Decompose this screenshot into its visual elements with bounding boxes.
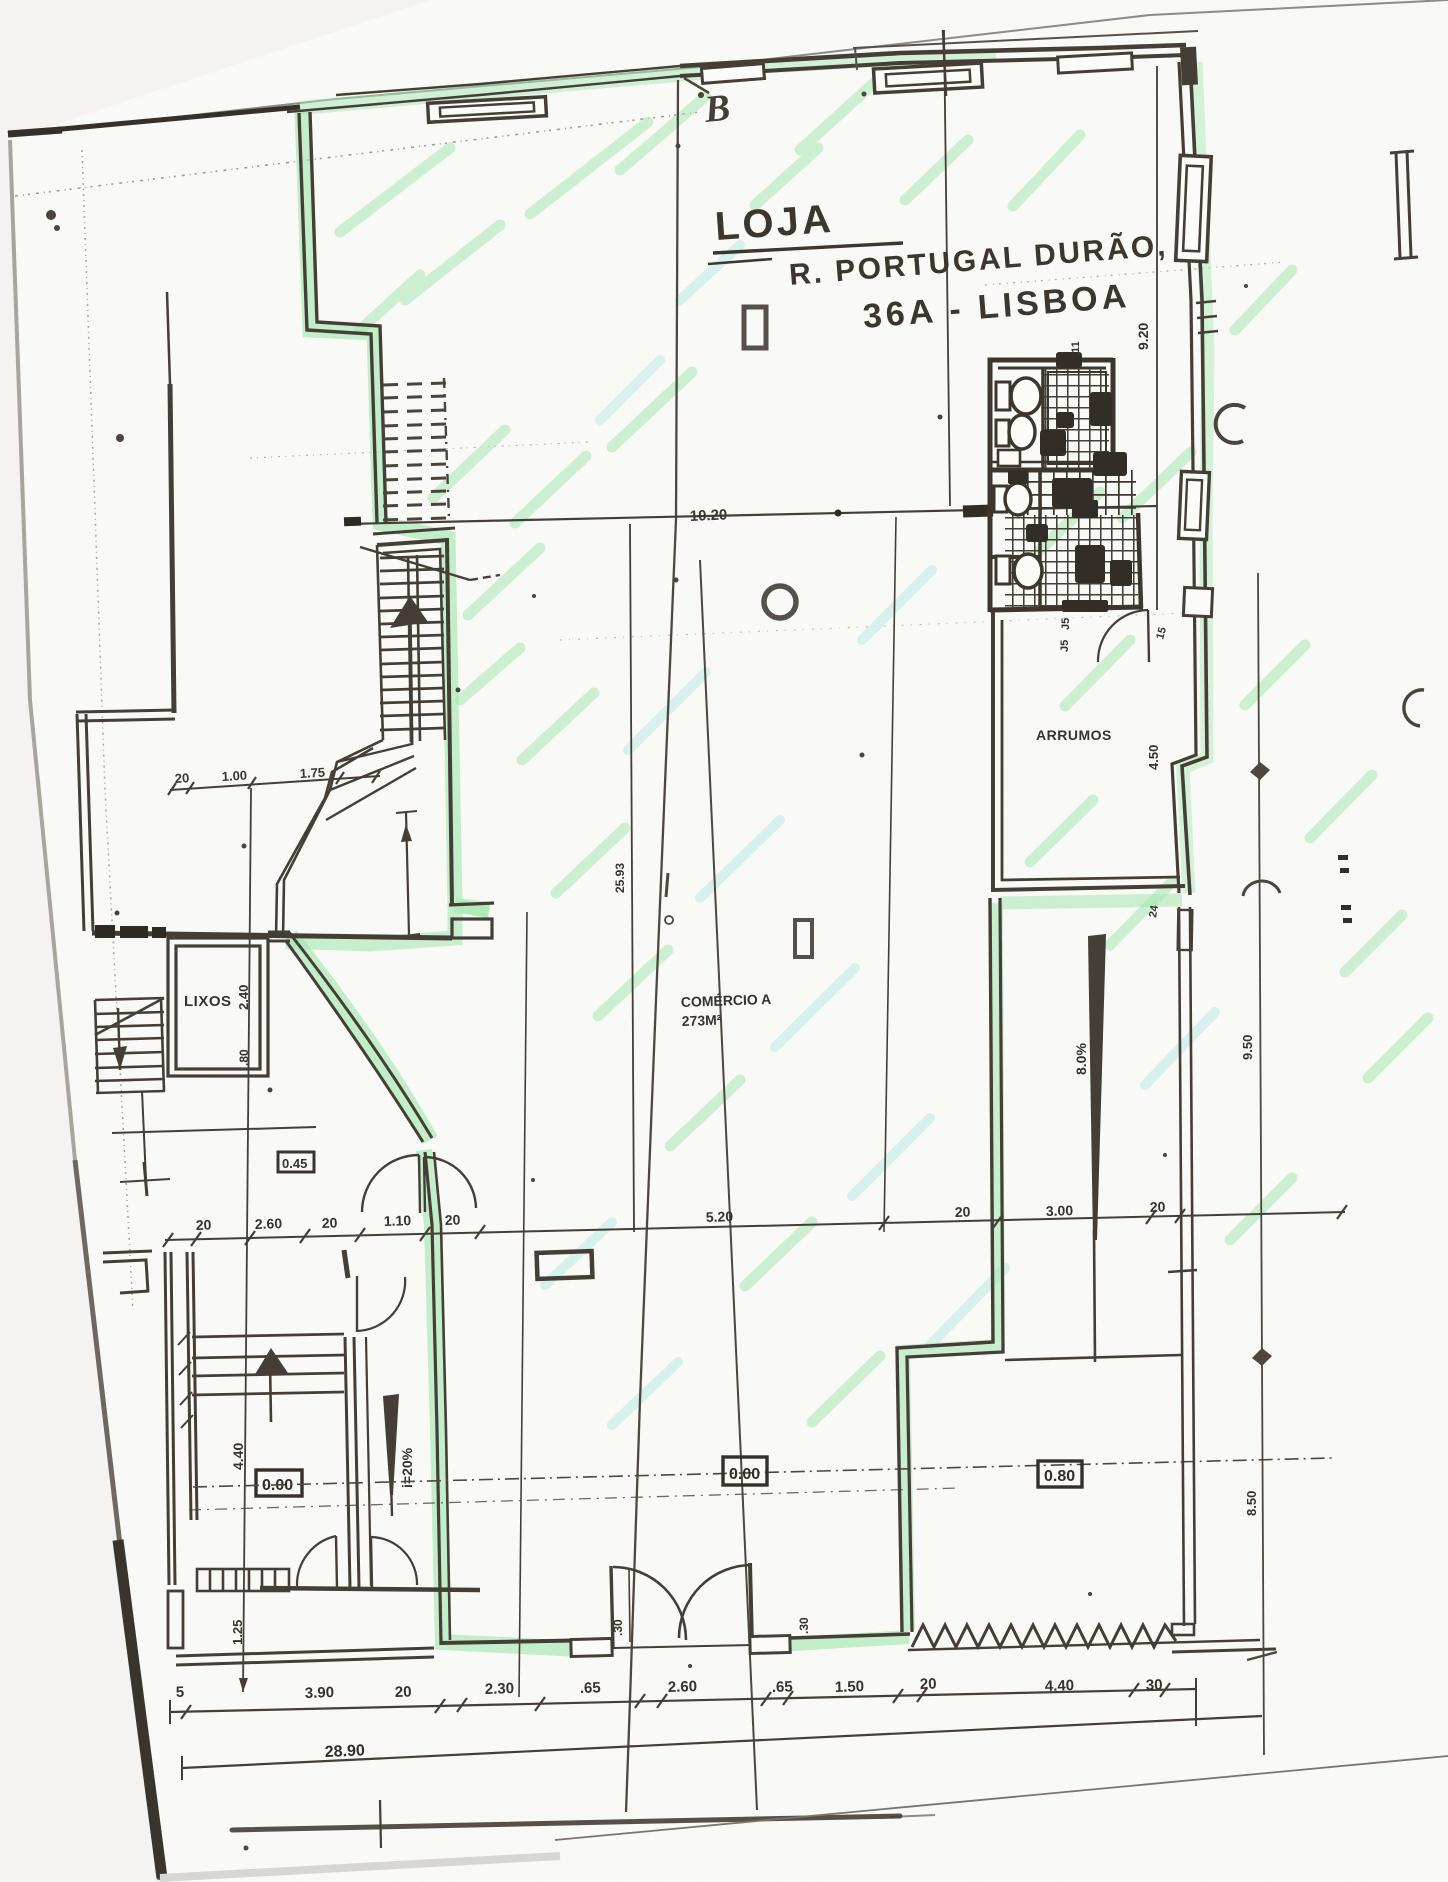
svg-text:9.50: 9.50 bbox=[1240, 1035, 1255, 1060]
svg-text:20: 20 bbox=[395, 1683, 412, 1701]
svg-text:4.40: 4.40 bbox=[230, 1443, 246, 1470]
svg-text:30: 30 bbox=[1146, 1676, 1163, 1694]
svg-text:20: 20 bbox=[174, 770, 189, 786]
svg-text:.30: .30 bbox=[611, 1619, 625, 1636]
svg-text:3.00: 3.00 bbox=[1046, 1202, 1074, 1219]
svg-text:B: B bbox=[702, 87, 733, 132]
svg-text:20: 20 bbox=[196, 1216, 212, 1233]
svg-text:2.60: 2.60 bbox=[255, 1215, 283, 1232]
svg-text:20: 20 bbox=[955, 1203, 971, 1220]
svg-text:0.45: 0.45 bbox=[282, 1156, 307, 1171]
svg-text:COMÉRCIO A: COMÉRCIO A bbox=[681, 991, 772, 1010]
svg-text:.30: .30 bbox=[797, 1617, 811, 1634]
svg-text:1.50: 1.50 bbox=[835, 1678, 865, 1696]
svg-text:ARRUMOS: ARRUMOS bbox=[1036, 727, 1112, 743]
svg-text:5.20: 5.20 bbox=[706, 1208, 734, 1225]
svg-text:1.75: 1.75 bbox=[299, 765, 325, 781]
svg-text:.11: .11 bbox=[1070, 341, 1082, 356]
svg-text:10.20: 10.20 bbox=[689, 506, 727, 525]
svg-text:28.90: 28.90 bbox=[324, 1742, 365, 1761]
svg-text:25.93: 25.93 bbox=[613, 863, 627, 893]
svg-text:20: 20 bbox=[322, 1214, 338, 1231]
svg-text:8.0%: 8.0% bbox=[1073, 1043, 1089, 1075]
svg-text:5: 5 bbox=[176, 1684, 185, 1701]
svg-text:2.60: 2.60 bbox=[668, 1678, 698, 1696]
svg-text:0.00: 0.00 bbox=[729, 1466, 760, 1483]
svg-text:LIXOS: LIXOS bbox=[184, 993, 232, 1010]
svg-text:4.40: 4.40 bbox=[1045, 1677, 1075, 1695]
svg-text:J5: J5 bbox=[1060, 618, 1072, 630]
svg-text:20: 20 bbox=[1150, 1198, 1166, 1215]
svg-text:4.50: 4.50 bbox=[1146, 745, 1161, 770]
svg-text:8.50: 8.50 bbox=[1244, 1491, 1259, 1516]
svg-text:1.25: 1.25 bbox=[230, 1620, 245, 1645]
svg-text:LOJA: LOJA bbox=[714, 197, 835, 249]
svg-text:20: 20 bbox=[445, 1211, 461, 1228]
svg-text:3.90: 3.90 bbox=[305, 1684, 335, 1702]
svg-text:2.30: 2.30 bbox=[485, 1680, 515, 1698]
svg-text:.65: .65 bbox=[772, 1678, 793, 1696]
svg-text:273M²: 273M² bbox=[681, 1012, 722, 1029]
svg-text:20: 20 bbox=[920, 1675, 937, 1693]
svg-text:1.00: 1.00 bbox=[221, 768, 247, 784]
svg-text:1.10: 1.10 bbox=[384, 1212, 412, 1229]
svg-text:9.20: 9.20 bbox=[1135, 323, 1151, 350]
svg-text:J5: J5 bbox=[1059, 640, 1071, 652]
svg-text:0.80: 0.80 bbox=[1044, 1468, 1075, 1485]
svg-text:.65: .65 bbox=[580, 1679, 601, 1697]
